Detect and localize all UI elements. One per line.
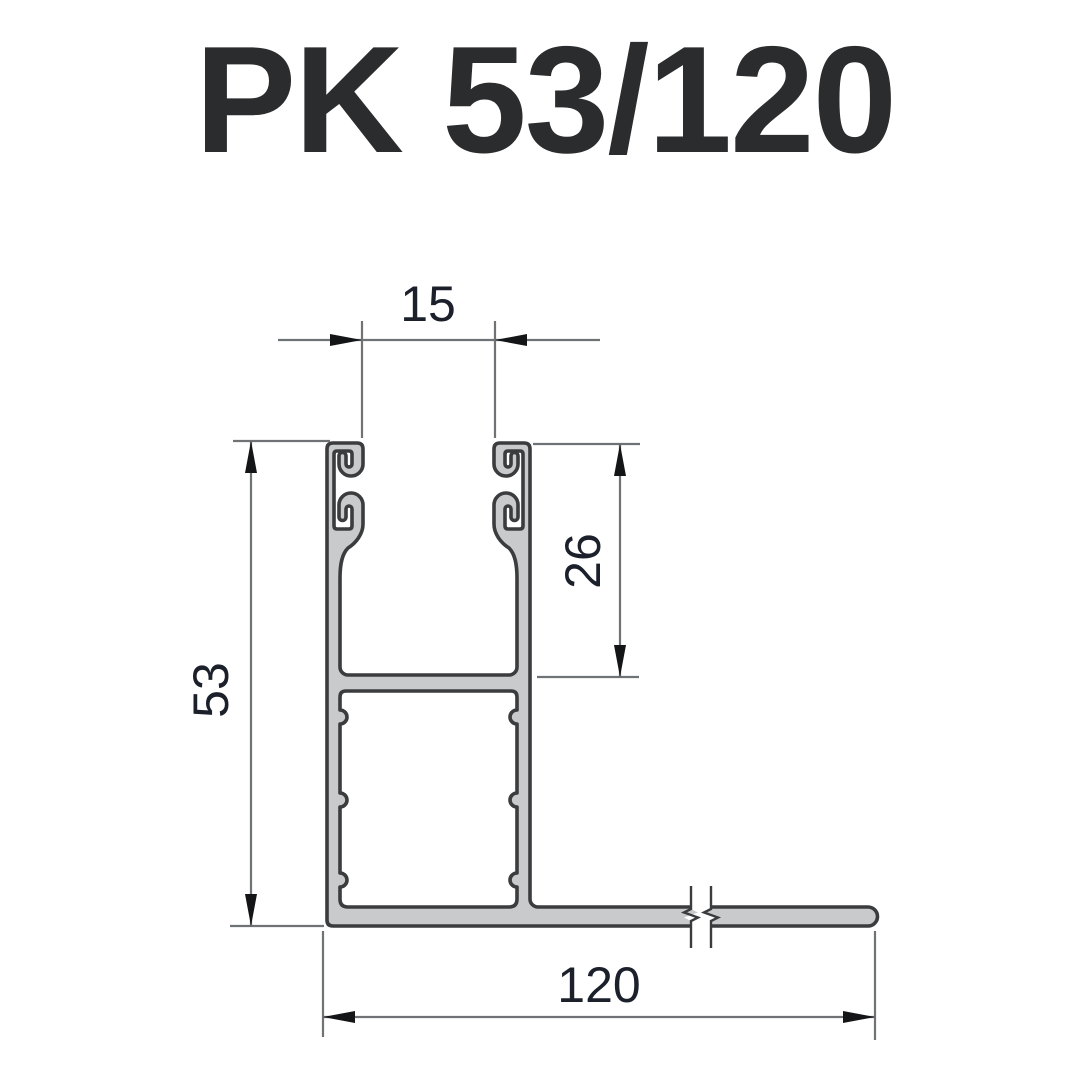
arrow-left-icon (495, 334, 527, 346)
dimension-label-slot-width: 15 (400, 276, 456, 332)
dimension-slot-width: 15 (278, 276, 600, 438)
arrow-left-icon (323, 1011, 355, 1023)
arrow-up-icon (614, 444, 626, 476)
arrow-right-icon (843, 1011, 875, 1023)
dimension-label-channel-depth: 26 (555, 533, 611, 589)
dimension-profile-height: 53 (183, 441, 330, 926)
dimension-label-base-width: 120 (557, 957, 640, 1013)
dimension-base-width: 120 (323, 931, 875, 1040)
arrow-right-icon (330, 334, 362, 346)
profile-body (327, 443, 878, 948)
dimension-channel-depth: 26 (533, 444, 640, 677)
drawing-title: PK 53/120 (195, 15, 895, 185)
profile-drawing-canvas: PK 53/120 15 26 (0, 0, 1080, 1080)
arrow-down-icon (245, 894, 257, 926)
arrow-up-icon (245, 441, 257, 473)
dimension-label-profile-height: 53 (183, 662, 239, 718)
arrow-down-icon (614, 645, 626, 677)
profile-cross-section-shape (327, 443, 878, 926)
technical-drawing-page: PK 53/120 15 26 (0, 0, 1080, 1080)
